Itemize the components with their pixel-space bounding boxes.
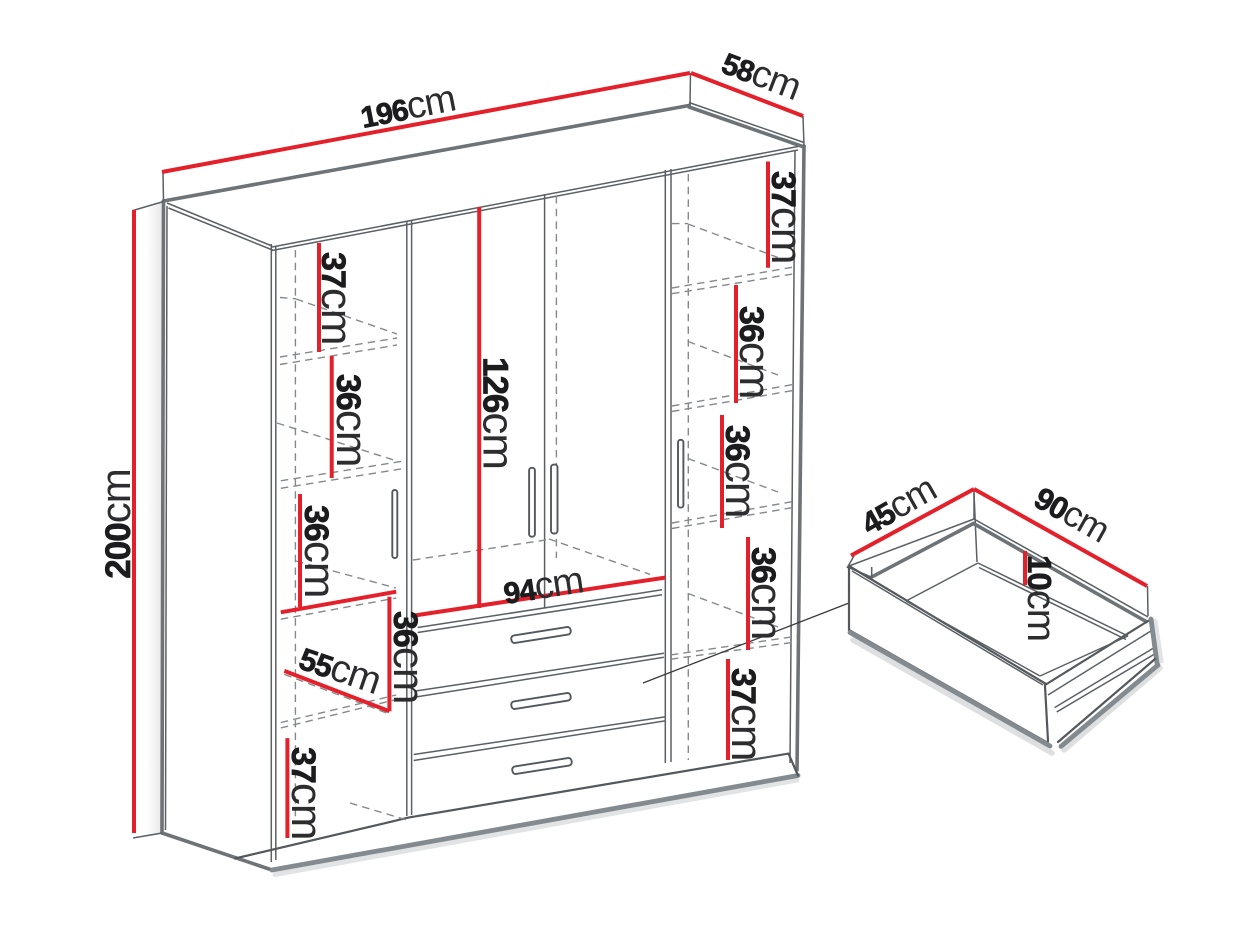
svg-text:126cm: 126cm	[474, 357, 523, 469]
svg-text:36cm: 36cm	[742, 547, 791, 639]
svg-text:37cm: 37cm	[312, 252, 361, 344]
svg-text:36cm: 36cm	[716, 425, 765, 517]
svg-text:36cm: 36cm	[384, 611, 433, 703]
svg-text:37cm: 37cm	[722, 668, 771, 760]
svg-text:196cm: 196cm	[357, 77, 459, 136]
svg-text:10cm: 10cm	[1019, 555, 1063, 641]
svg-text:37cm: 37cm	[282, 747, 331, 839]
svg-text:36cm: 36cm	[730, 306, 779, 398]
svg-text:36cm: 36cm	[295, 505, 344, 597]
svg-text:94cm: 94cm	[500, 559, 585, 612]
svg-text:200cm: 200cm	[92, 469, 139, 578]
svg-text:90cm: 90cm	[1028, 476, 1116, 550]
svg-text:36cm: 36cm	[327, 374, 376, 466]
